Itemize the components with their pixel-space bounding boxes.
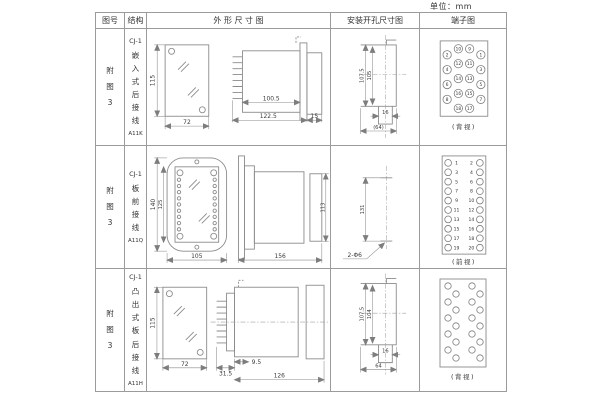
structure-desc: 凸出式板后接线 xyxy=(132,285,140,377)
dim-mount-height-inner: 105 xyxy=(367,71,373,81)
svg-text:13: 13 xyxy=(467,76,473,82)
structure-code: A11H xyxy=(128,381,143,387)
side-view xyxy=(239,156,322,259)
svg-text:14: 14 xyxy=(456,76,462,82)
structure-code: A11Q xyxy=(128,238,143,244)
dim-mount-height-outer: 107.5 xyxy=(360,307,366,322)
terminal-diagram-cell: 1 3 5 7 9 11 13 15 17 19 2 4 6 8 10 12 1 xyxy=(420,146,506,269)
front-view-dims: 115 72 xyxy=(149,287,206,371)
structure-model: CJ-1 xyxy=(129,273,142,281)
svg-text:20: 20 xyxy=(469,245,475,251)
svg-text:5: 5 xyxy=(455,179,458,185)
terminal-caption: (背视) xyxy=(451,372,475,381)
svg-text:1: 1 xyxy=(479,52,482,58)
structure-model: CJ-1 xyxy=(129,170,142,178)
svg-text:18: 18 xyxy=(456,106,462,112)
front-view xyxy=(167,158,227,251)
svg-text:3: 3 xyxy=(479,67,482,73)
svg-text:11: 11 xyxy=(454,208,460,214)
dim-cutout-width: (64) xyxy=(373,125,384,131)
structure-code: A11K xyxy=(128,131,142,137)
terminal-caption: (前视) xyxy=(452,257,476,266)
svg-text:13: 13 xyxy=(454,217,460,223)
mounting-drawing-cell: 107.5 104 16 64 xyxy=(331,269,420,391)
side-view-dims: 31.5 9.5 126 xyxy=(217,347,324,383)
svg-text:7: 7 xyxy=(479,97,482,103)
side-view xyxy=(217,280,324,359)
terminal-circles xyxy=(445,283,483,361)
dim-front-width: 105 xyxy=(191,253,203,260)
svg-text:9: 9 xyxy=(468,46,471,52)
svg-text:18: 18 xyxy=(469,236,475,242)
terminal-diagram-cell: (背视) xyxy=(420,269,506,391)
svg-text:3: 3 xyxy=(455,170,458,176)
spec-table: 图号 结构 外 形 尺 寸 图 安装开孔尺寸图 端子图 附图3 CJ-1 嵌入式… xyxy=(95,12,507,392)
svg-text:6: 6 xyxy=(470,179,473,185)
figure-number-cell: 附图3 xyxy=(96,29,125,146)
front-view-dims: 140 125 105 xyxy=(150,158,226,263)
dim-front-inner-height: 125 xyxy=(158,200,164,210)
dim-slot-width: 16 xyxy=(382,349,389,355)
figure-number: 附图3 xyxy=(106,306,114,353)
mount-dims: 131 2-Φ6 xyxy=(343,178,385,259)
svg-text:19: 19 xyxy=(454,245,460,251)
dim-slot-width: 16 xyxy=(382,110,389,116)
svg-text:12: 12 xyxy=(456,61,462,67)
dim-front-width: 72 xyxy=(181,361,189,368)
figure-number-cell: 附图3 xyxy=(96,146,125,269)
structure-desc: 嵌入式后接线 xyxy=(132,49,140,128)
mounting-drawing: 107.5 104 16 64 xyxy=(331,269,419,391)
column-header-outline: 外 形 尺 寸 图 xyxy=(147,13,331,29)
dim-step-depth: 9.5 xyxy=(252,359,262,366)
dim-body-length: 126 xyxy=(274,373,286,380)
svg-text:7: 7 xyxy=(455,189,458,195)
mounting-drawing-cell: 107.5 105 16 (64) xyxy=(331,29,420,146)
outline-drawing-cell: 115 72 31.5 9.5 xyxy=(147,269,331,391)
cutout-dims: 107.5 105 16 (64) xyxy=(360,45,401,134)
svg-text:16: 16 xyxy=(456,91,462,97)
svg-text:15: 15 xyxy=(454,226,460,232)
outline-drawing: 140 125 105 156 xyxy=(147,146,330,268)
svg-text:8: 8 xyxy=(446,97,449,103)
terminal-caption: (背视) xyxy=(452,122,476,131)
svg-text:2: 2 xyxy=(446,52,449,58)
figure-number-cell: 附图3 xyxy=(96,269,125,391)
terminal-diagram-cell: 2 4 6 8 10 12 14 16 18 9 11 13 15 17 1 3 xyxy=(420,29,506,146)
column-header-figure-no: 图号 xyxy=(96,13,125,29)
dim-front-width: 72 xyxy=(183,119,191,126)
svg-text:17: 17 xyxy=(467,106,473,112)
dim-rear-depth: 15 xyxy=(311,113,319,120)
terminal-diagram: 2 4 6 8 10 12 14 16 18 9 11 13 15 17 1 3 xyxy=(420,29,506,145)
terminal-diagram: 1 3 5 7 9 11 13 15 17 19 2 4 6 8 10 12 1 xyxy=(420,146,506,268)
svg-text:4: 4 xyxy=(446,67,449,73)
figure-number: 附图3 xyxy=(106,183,114,230)
side-view-dims: 156 113 xyxy=(239,174,329,263)
side-view xyxy=(233,37,322,120)
svg-text:16: 16 xyxy=(469,226,475,232)
structure-cell: CJ-1 板前接线 A11Q xyxy=(125,146,147,269)
hole-label: 2-Φ6 xyxy=(348,252,363,259)
panel-cutout xyxy=(361,279,397,363)
outline-drawing-cell: 115 72 100.5 122.5 xyxy=(147,29,331,146)
svg-text:8: 8 xyxy=(470,189,473,195)
mounting-drawing: 131 2-Φ6 xyxy=(331,146,419,268)
front-view xyxy=(163,287,207,359)
svg-text:15: 15 xyxy=(467,91,473,97)
svg-text:6: 6 xyxy=(446,82,449,88)
outline-drawing-cell: 140 125 105 156 xyxy=(147,146,331,269)
svg-text:12: 12 xyxy=(469,208,475,214)
structure-cell: CJ-1 嵌入式后接线 A11K xyxy=(125,29,147,146)
dim-front-outer-height: 140 xyxy=(150,199,157,211)
svg-text:5: 5 xyxy=(479,82,482,88)
side-view-dims: 100.5 122.5 15 xyxy=(233,95,322,122)
cutout-dims: 107.5 104 16 64 xyxy=(360,284,401,373)
svg-text:11: 11 xyxy=(467,61,473,67)
svg-text:4: 4 xyxy=(470,170,473,176)
svg-text:10: 10 xyxy=(456,46,462,52)
dim-cutout-width: 64 xyxy=(375,364,382,370)
front-view xyxy=(165,45,209,116)
mounting-drawing-cell: 131 2-Φ6 xyxy=(331,146,420,269)
dim-mount-height-outer: 107.5 xyxy=(360,68,366,83)
svg-text:10: 10 xyxy=(469,198,475,204)
svg-text:1: 1 xyxy=(455,160,458,166)
unit-label: 单位：mm xyxy=(430,1,472,12)
terminal-circles xyxy=(445,159,483,251)
outline-drawing: 115 72 31.5 9.5 xyxy=(147,269,330,391)
svg-text:17: 17 xyxy=(454,236,460,242)
dim-front-height: 115 xyxy=(149,317,156,329)
figure-number: 附图3 xyxy=(106,63,114,110)
column-header-terminal: 端子图 xyxy=(420,13,506,29)
svg-text:14: 14 xyxy=(469,217,475,223)
dim-mount-height-inner: 104 xyxy=(367,309,373,319)
column-header-mounting: 安装开孔尺寸图 xyxy=(331,13,420,29)
dim-body-length: 100.5 xyxy=(263,95,280,102)
outline-drawing: 115 72 100.5 122.5 xyxy=(147,29,330,145)
terminal-numbers: 1 3 5 7 9 11 13 15 17 19 2 4 6 8 10 12 1 xyxy=(454,160,475,251)
dim-side-length: 156 xyxy=(274,253,286,260)
panel-cutout xyxy=(361,40,397,124)
svg-text:2: 2 xyxy=(470,160,473,166)
structure-desc: 板前接线 xyxy=(132,182,140,235)
mounting-drawing: 107.5 105 16 (64) xyxy=(331,29,419,145)
dim-side-height: 113 xyxy=(320,203,326,213)
dim-front-height: 115 xyxy=(150,75,157,87)
terminal-diagram: (背视) xyxy=(420,269,506,391)
document-page: 单位：mm 图号 结构 外 形 尺 寸 图 安装开孔尺寸图 端子图 附图3 CJ… xyxy=(0,0,600,400)
dim-front-depth: 31.5 xyxy=(219,371,232,378)
dim-total-length: 122.5 xyxy=(260,113,277,120)
dim-hole-spacing: 131 xyxy=(360,205,366,215)
structure-model: CJ-1 xyxy=(129,37,142,45)
structure-cell: CJ-1 凸出式板后接线 A11H xyxy=(125,269,147,391)
column-header-structure: 结构 xyxy=(125,13,147,29)
svg-text:9: 9 xyxy=(455,198,458,204)
